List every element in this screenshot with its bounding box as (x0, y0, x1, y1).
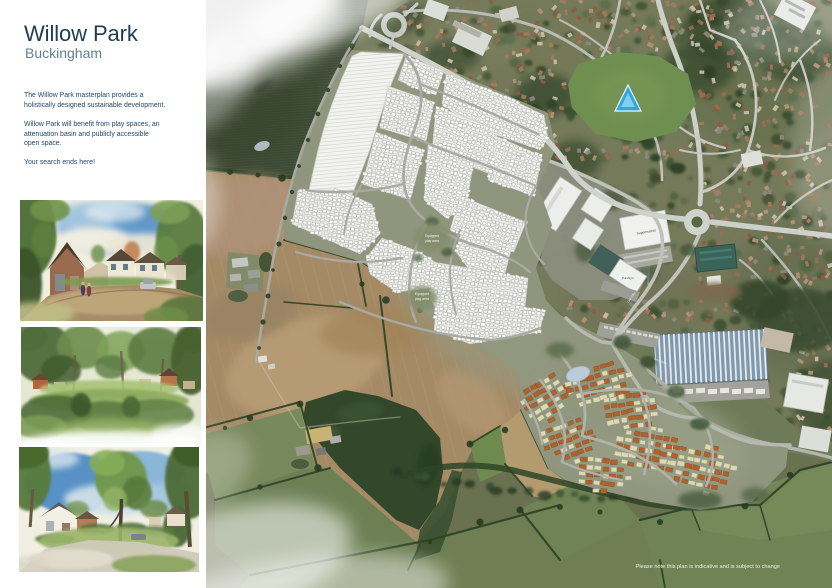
svg-text:Please note this plan is indic: Please note this plan is indicative and … (636, 564, 780, 570)
svg-text:Equipped: Equipped (415, 292, 429, 296)
svg-text:Equipped: Equipped (425, 234, 439, 238)
svg-text:play area: play area (415, 297, 429, 301)
svg-text:PureGym: PureGym (622, 276, 634, 280)
svg-text:play area: play area (425, 239, 439, 243)
